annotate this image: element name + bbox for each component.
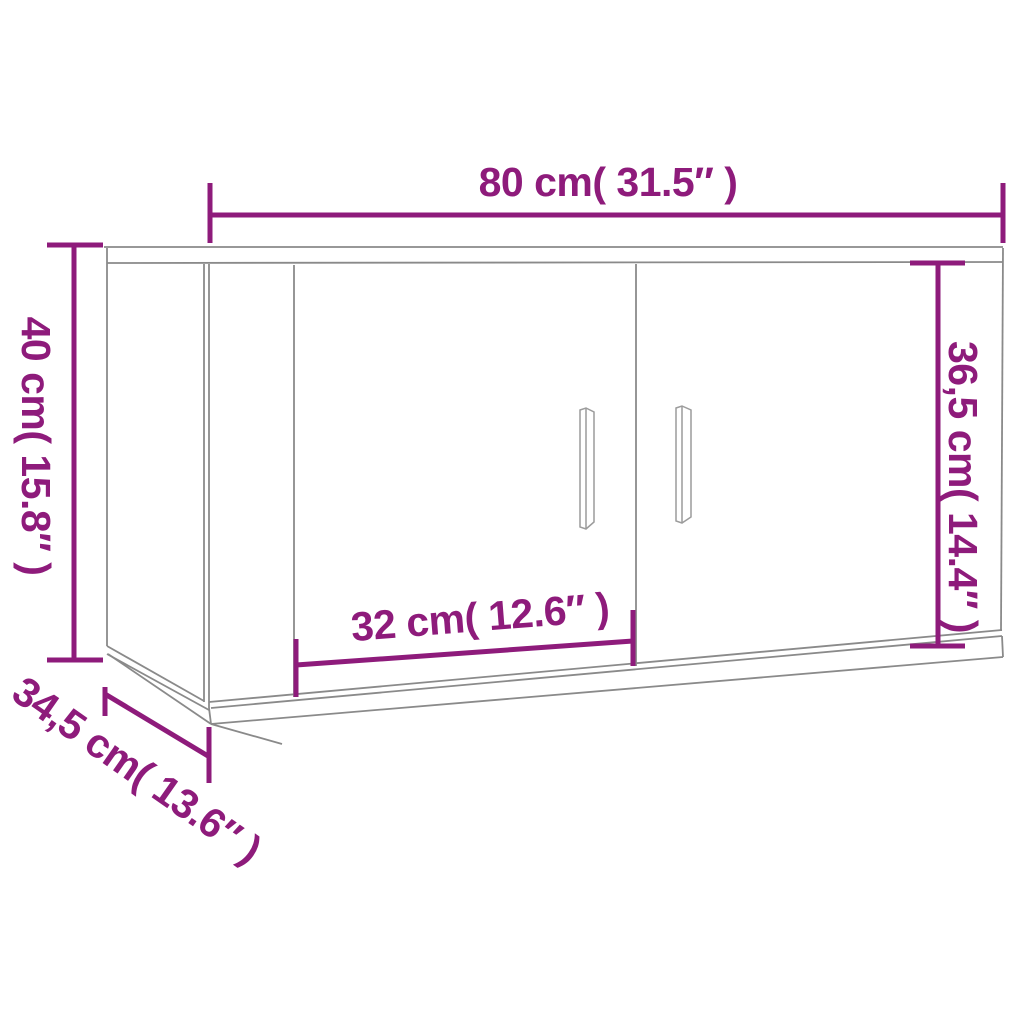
cabinet-dimension-diagram-page: 80 cm( 31.5″ ) 40 cm( 15.8″ ) 36,5 cm( 1… <box>0 0 1024 1024</box>
bottom-left-wedge-edge <box>108 654 211 724</box>
side-panel-bottom-edge <box>107 646 204 701</box>
cabinet-outline <box>104 247 1003 744</box>
bottom-back-edge <box>211 724 282 744</box>
cabinet-bottom-front-edge-inner <box>211 636 1002 708</box>
depth-dimension-label: 34,5 cm( 13.6″ ) <box>4 667 270 872</box>
height-dimension-label: 40 cm( 15.8″ ) <box>13 317 59 576</box>
door-width-dimension-line <box>296 641 633 665</box>
cabinet-dimension-diagram: 80 cm( 31.5″ ) 40 cm( 15.8″ ) 36,5 cm( 1… <box>0 0 1024 1024</box>
left-door-handle <box>580 408 594 529</box>
cabinet-top-band-edge <box>107 262 1003 263</box>
door-width-dimension-label: 32 cm( 12.6″ ) <box>349 584 611 650</box>
door-height-dimension-label: 36,5 cm( 14.4″ ) <box>940 341 986 633</box>
width-dimension-label: 80 cm( 31.5″ ) <box>479 159 738 205</box>
cabinet-right-edge <box>1001 248 1003 631</box>
right-door-handle <box>676 406 691 523</box>
dimension-labels: 80 cm( 31.5″ ) 40 cm( 15.8″ ) 36,5 cm( 1… <box>4 159 986 873</box>
bottom-skirt-right-edge <box>1002 636 1003 657</box>
bottom-skirt-left-edge <box>209 708 211 724</box>
